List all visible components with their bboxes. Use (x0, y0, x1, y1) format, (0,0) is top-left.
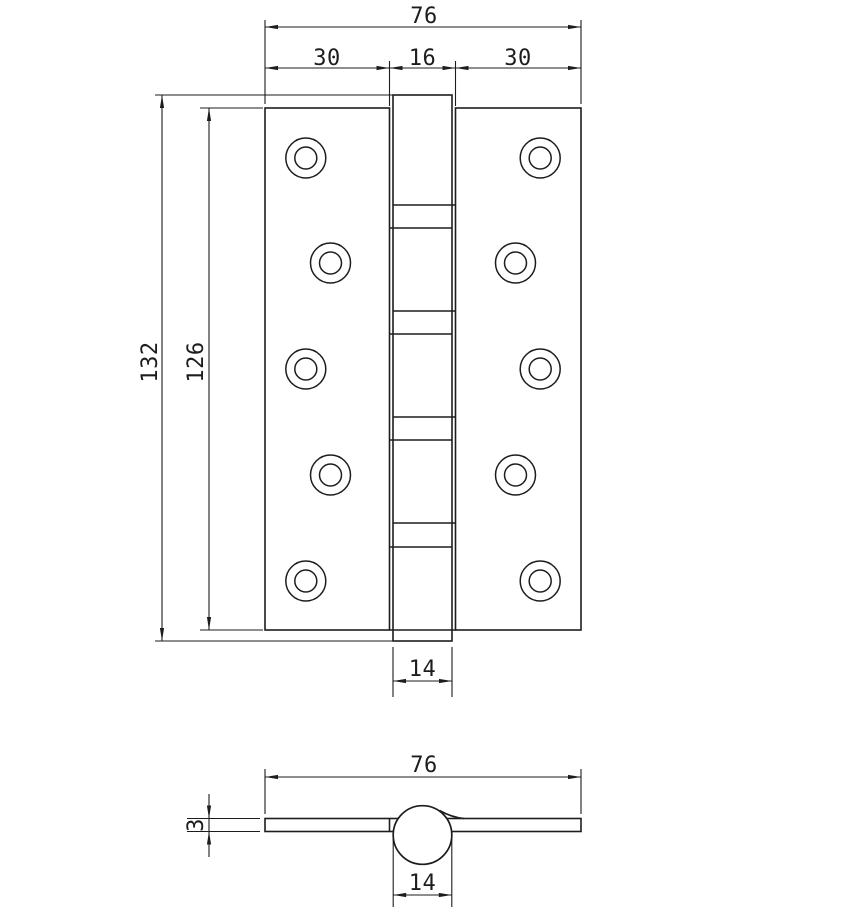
screw-hole (520, 561, 560, 601)
knuckle-joint-1 (390, 205, 456, 228)
screw-hole (520, 138, 560, 178)
dim-right-leaf-label: 30 (504, 46, 532, 71)
front-view: 76 30 16 30 132 (138, 4, 581, 697)
left-leaf-screw-holes (286, 138, 351, 601)
barrel-outline (393, 95, 452, 641)
right-leaf-plate (456, 108, 582, 630)
hinge-technical-drawing: 76 30 16 30 132 (0, 0, 855, 912)
screw-hole (520, 349, 560, 389)
dim-section-thickness: 3 (184, 794, 260, 857)
screw-hole (496, 243, 536, 283)
screw-hole (311, 455, 351, 495)
dim-barrel-diameter-label: 14 (409, 871, 437, 896)
arrow-left (265, 25, 278, 29)
dim-pin-gap-label: 16 (409, 46, 437, 71)
drawing-canvas: 76 30 16 30 132 (0, 0, 855, 912)
screw-hole (286, 561, 326, 601)
dim-section-width-label: 76 (410, 753, 438, 778)
dim-front-total-width-label: 76 (410, 4, 438, 29)
dim-thickness-label: 3 (184, 818, 209, 832)
right-leaf-screw-holes (496, 138, 561, 601)
dim-section-total-width: 76 (265, 753, 581, 814)
dim-front-leaf-split: 30 16 30 (265, 46, 581, 106)
dim-total-height-label: 132 (138, 341, 163, 382)
dim-front-knuckle-width: 14 (393, 647, 452, 697)
knuckle-barrel (390, 95, 456, 641)
knuckle-joint-2 (390, 311, 456, 334)
left-leaf-plate (265, 108, 390, 630)
screw-hole (311, 243, 351, 283)
section-view: 76 3 14 (184, 753, 581, 907)
dim-leaf-height-label: 126 (184, 341, 209, 382)
screw-hole (286, 138, 326, 178)
dim-left-leaf-label: 30 (313, 46, 341, 71)
screw-hole (286, 349, 326, 389)
knuckle-joint-3 (390, 417, 456, 440)
barrel-circle (393, 806, 452, 865)
knuckle-joint-4 (390, 523, 456, 547)
dim-front-leaf-height: 126 (184, 108, 263, 630)
dim-knuckle-width-label: 14 (409, 657, 437, 682)
arrow-right (568, 25, 581, 29)
screw-hole (496, 455, 536, 495)
